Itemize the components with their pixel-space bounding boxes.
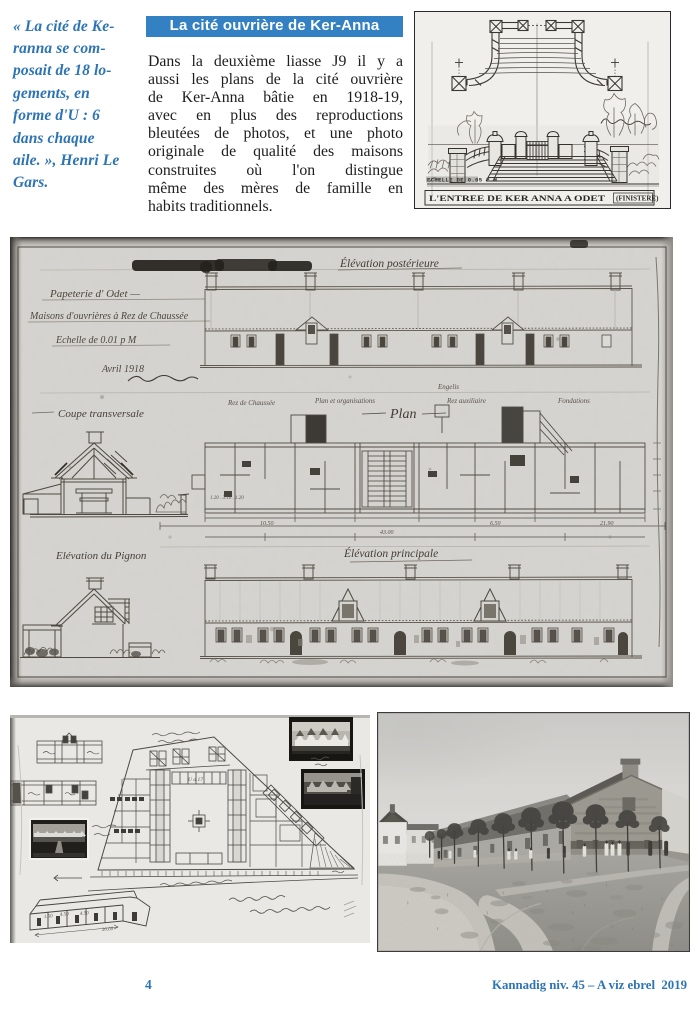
svg-text:Plan et organisations: Plan et organisations: [314, 397, 375, 405]
svg-text:Papeterie d' Odet —: Papeterie d' Odet —: [49, 288, 140, 300]
svg-text:Engelis: Engelis: [437, 383, 459, 391]
svg-text:Echelle de 0.01 p M: Echelle de 0.01 p M: [55, 335, 137, 346]
svg-text:U d 17: U d 17: [188, 777, 203, 783]
svg-text:4.50: 4.50: [80, 911, 90, 917]
svg-text:20.00: 20.00: [102, 927, 114, 933]
svg-text:4.50: 4.50: [60, 912, 70, 918]
svg-text:Rez de Chaussée: Rez de Chaussée: [227, 399, 275, 407]
svg-text:Avril 1918: Avril 1918: [101, 364, 144, 375]
svg-text:10.50: 10.50: [260, 521, 274, 527]
svg-text:21.90: 21.90: [600, 521, 614, 527]
svg-text:Elévation du Pignon: Elévation du Pignon: [55, 550, 147, 562]
svg-text:43.00: 43.00: [380, 529, 394, 536]
svg-text:Fondations: Fondations: [557, 397, 590, 405]
svg-text:Élévation principale: Élévation principale: [343, 546, 438, 560]
svg-text:Plan: Plan: [389, 407, 416, 422]
svg-text:Rez auxiliaire: Rez auxiliaire: [446, 397, 486, 405]
svg-text:L'ENTREE DE KER ANNA A ODET: L'ENTREE DE KER ANNA A ODET: [429, 193, 605, 203]
svg-text:1.20 . 3.10 . 1.20: 1.20 . 3.10 . 1.20: [210, 496, 244, 501]
svg-text:Élévation postérieure: Élévation postérieure: [339, 256, 439, 270]
svg-text:Maisons d'ouvrières à Rez: Maisons d'ouvrières à Rez de Chaussée: [29, 311, 189, 322]
svg-text:6.50: 6.50: [490, 521, 501, 527]
svg-text:1.50: 1.50: [44, 914, 54, 920]
svg-text:Coupe transversale: Coupe transversale: [58, 408, 144, 420]
